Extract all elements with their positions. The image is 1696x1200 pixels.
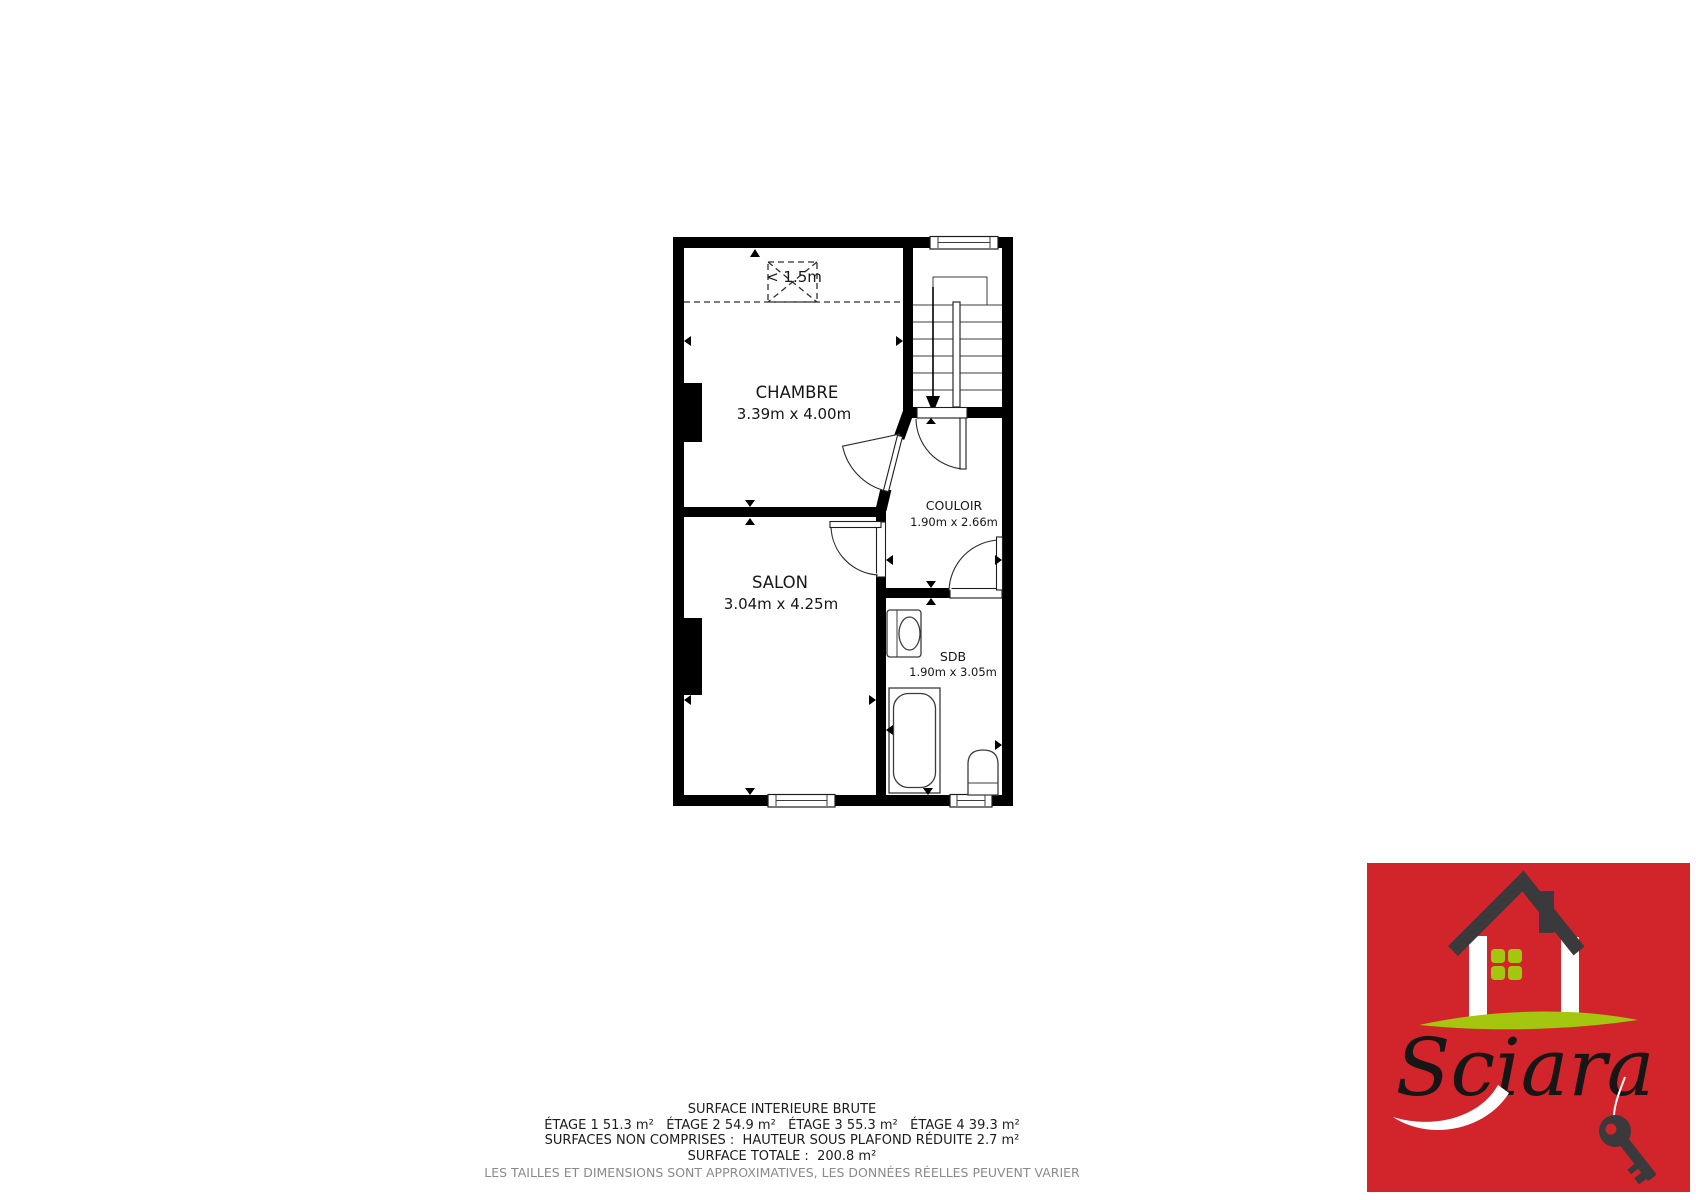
room-dims: 1.90m x 2.66m [910, 515, 998, 529]
surface-title: SURFACE INTERIEURE BRUTE [432, 1102, 1132, 1118]
bathtub-icon [889, 688, 940, 793]
room-dims: 3.39m x 4.00m [737, 405, 851, 423]
window-salon [768, 795, 835, 808]
door-stairs [916, 408, 967, 470]
door-sdb [949, 537, 1003, 598]
chimney-salon [676, 618, 702, 695]
surface-summary: SURFACE INTERIEURE BRUTE ÉTAGE 1 51.3 m²… [432, 1102, 1132, 1181]
room-dims: 1.90m x 3.05m [909, 665, 997, 679]
room-chambre: CHAMBRE 3.39m x 4.00m [737, 383, 851, 423]
floor-plan: < 1.5m CHAMBRE 3.39m x 4.00m SALON 3.04m… [665, 230, 1021, 814]
room-label: COULOIR [926, 498, 983, 513]
window-stairwell [930, 237, 998, 250]
roof [1453, 881, 1579, 951]
agency-logo-art: Sciara [1367, 863, 1690, 1192]
room-label: SALON [752, 573, 808, 592]
door-salon [830, 522, 886, 578]
sink-icon [968, 750, 998, 795]
window-sdb [950, 795, 992, 808]
low-ceiling-label: < 1.5m [766, 268, 822, 286]
room-label: CHAMBRE [756, 383, 839, 402]
fixtures [887, 610, 998, 795]
room-salon: SALON 3.04m x 4.25m [724, 573, 838, 613]
house-icon [1419, 881, 1638, 1029]
agency-logo: Sciara [1367, 863, 1690, 1192]
house-wall-left [1469, 936, 1487, 1018]
door-chambre [843, 434, 903, 492]
window-icon [1491, 949, 1522, 980]
room-couloir: COULOIR 1.90m x 2.66m [910, 498, 998, 529]
page: { "floor_plan": { "low_ceiling_label": "… [0, 0, 1696, 1200]
floor-plan-svg: < 1.5m CHAMBRE 3.39m x 4.00m SALON 3.04m… [665, 230, 1021, 814]
surface-total: SURFACE TOTALE : 200.8 m² [432, 1149, 1132, 1165]
room-sdb: SDB 1.90m x 3.05m [909, 649, 997, 679]
surface-excluded: SURFACES NON COMPRISES : HAUTEUR SOUS PL… [432, 1133, 1132, 1149]
surface-per-floor: ÉTAGE 1 51.3 m² ÉTAGE 2 54.9 m² ÉTAGE 3 … [432, 1118, 1132, 1134]
brand-text: Sciara [1396, 1021, 1655, 1114]
staircase [913, 277, 1002, 413]
toilet-icon [887, 610, 921, 657]
brand-wordmark: Sciara [1393, 1021, 1654, 1130]
room-label: SDB [940, 649, 966, 664]
room-dims: 3.04m x 4.25m [724, 595, 838, 613]
disclaimer: LES TAILLES ET DIMENSIONS SONT APPROXIMA… [432, 1165, 1132, 1181]
chimney-chambre [676, 383, 702, 442]
